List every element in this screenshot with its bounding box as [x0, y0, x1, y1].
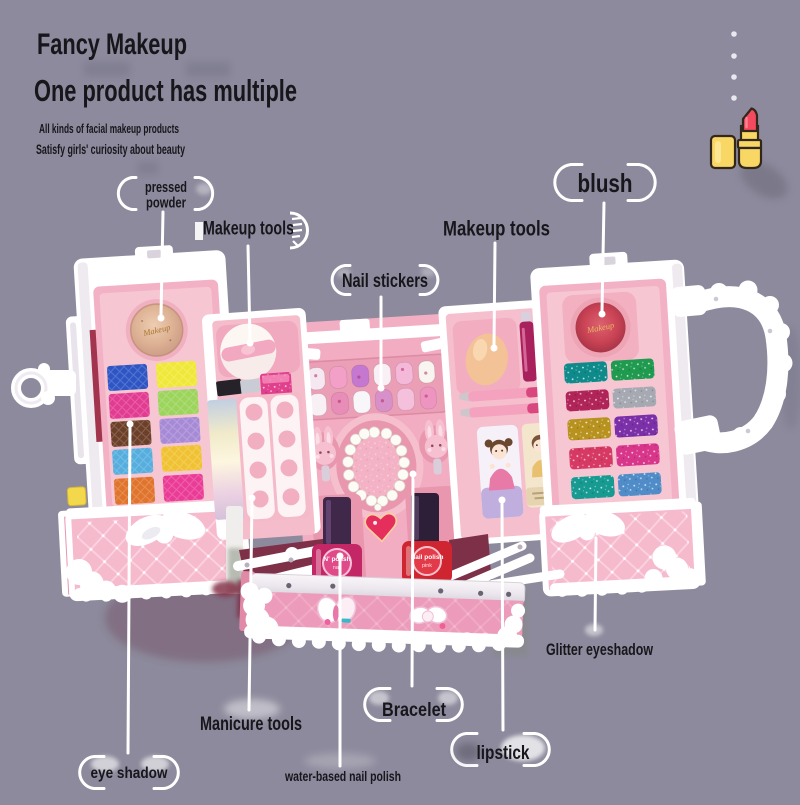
svg-text:One product has multiple: One product has multiple	[34, 74, 297, 108]
svg-text:Bracelet: Bracelet	[382, 700, 447, 721]
svg-text:Nail stickers: Nail stickers	[342, 270, 428, 292]
svg-text:Manicure tools: Manicure tools	[200, 714, 302, 735]
svg-text:blush: blush	[578, 168, 633, 198]
svg-text:Makeup tools: Makeup tools	[443, 218, 550, 241]
svg-text:Glitter eyeshadow: Glitter eyeshadow	[546, 641, 653, 659]
svg-text:lipstick: lipstick	[477, 743, 530, 764]
svg-text:water-based nail polish: water-based nail polish	[284, 768, 401, 784]
svg-text:All kinds of facial makeup pro: All kinds of facial makeup products	[39, 122, 179, 136]
svg-text:Makeup tools: Makeup tools	[203, 219, 294, 240]
svg-text:Fancy Makeup: Fancy Makeup	[37, 28, 187, 61]
svg-text:powder: powder	[146, 196, 186, 212]
svg-text:pressed: pressed	[145, 180, 187, 196]
svg-text:Satisfy girls' curiosity about: Satisfy girls' curiosity about beauty	[36, 142, 185, 157]
svg-text:eye shadow: eye shadow	[91, 765, 168, 782]
svg-text:Nail polish: Nail polish	[411, 554, 444, 561]
svg-text:pink: pink	[422, 563, 432, 569]
